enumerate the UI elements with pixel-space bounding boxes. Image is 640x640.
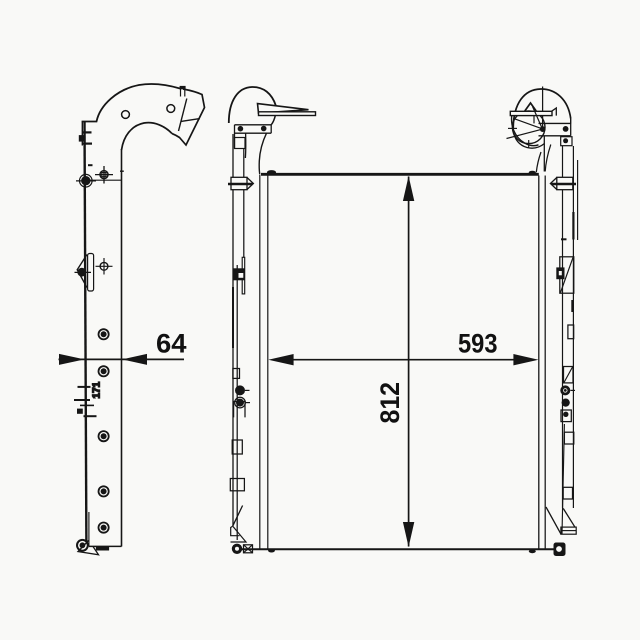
svg-text:593: 593: [458, 329, 498, 359]
svg-text:171: 171: [92, 381, 103, 398]
svg-text:64: 64: [156, 329, 187, 359]
svg-text:812: 812: [375, 382, 405, 424]
